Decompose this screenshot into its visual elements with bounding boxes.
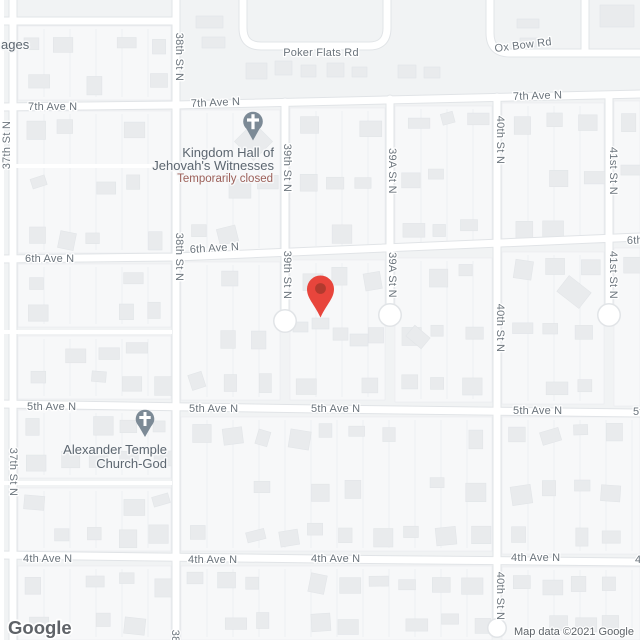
road-label-37th-st-n: 37th St N (1, 121, 13, 170)
road-label-poker-flats-rd: Poker Flats Rd (283, 47, 359, 59)
road-label-5th-ave-n: 5th Ave N (189, 403, 238, 415)
road-label-40th-st-n: 40th St N (494, 304, 506, 353)
road-label-41st-st-n: 41st St N (607, 147, 619, 195)
poi-label-alexander-temple-line2[interactable]: Church-God (96, 456, 167, 471)
road-label-39a-st-n: 39A St N (386, 252, 398, 298)
road-label-7th-ave-n: 7th Ave N (28, 101, 77, 113)
poi-status-temporarily-closed: Temporarily closed (177, 173, 273, 185)
map-attribution: Map data ©2021 Google (514, 626, 634, 638)
cross-icon (251, 114, 254, 129)
google-logo[interactable]: Google (8, 617, 72, 638)
poi-label-kingdom-hall-line2[interactable]: Jehovah's Witnesses (152, 158, 274, 173)
road-label-4th-ave-n: 4th Ave N (23, 553, 72, 565)
road-label-38th-st-n: 38th St N (173, 33, 185, 82)
road-label-39th-st-n: 39th St N (281, 251, 293, 300)
road-label-39a-st-n: 39A St N (386, 148, 398, 194)
marker-dot (315, 283, 326, 294)
road-label-5th-ave-n: 5th Ave N (311, 403, 360, 415)
road-label-4th-ave-n: 4th Ave N (188, 554, 237, 566)
road-label-4th-ave-n: 4th Ave N (511, 552, 560, 564)
road-label-6th-ave-n: 6th Ave N (25, 253, 74, 265)
road-label-40th-st-n: 40th St N (494, 572, 506, 621)
map-viewport[interactable]: ages Poker Flats Rd Ox Bow Rd 7th Ave N … (0, 0, 640, 640)
road-label-38th-st-n: 38th St N (169, 630, 181, 640)
poi-label-alexander-temple-line1[interactable]: Alexander Temple (63, 442, 167, 457)
road-label-6th-ave-n: 6th Ave N (627, 233, 640, 247)
road-label-4th-ave-n: 4th Ave N (635, 554, 640, 566)
road-label-40th-st-n: 40th St N (494, 116, 506, 165)
road-label-5th-ave-n: 5th Ave N (633, 406, 640, 418)
road-label-7th-ave-n: 7th Ave N (191, 96, 241, 110)
road-label-7th-ave-n: 7th Ave N (513, 89, 563, 103)
road-label-5th-ave-n: 5th Ave N (513, 405, 562, 417)
partial-place-label: ages (1, 37, 30, 52)
road-label-39th-st-n: 39th St N (281, 144, 293, 193)
map-canvas[interactable]: ages Poker Flats Rd Ox Bow Rd 7th Ave N … (0, 0, 640, 640)
road-label-38th-st-n: 38th St N (173, 233, 185, 282)
road-label-37th-st-n: 37th St N (7, 448, 19, 497)
road-label-4th-ave-n: 4th Ave N (311, 553, 360, 565)
road-label-41st-st-n: 41st St N (607, 251, 619, 299)
road-label-5th-ave-n: 5th Ave N (27, 401, 76, 413)
